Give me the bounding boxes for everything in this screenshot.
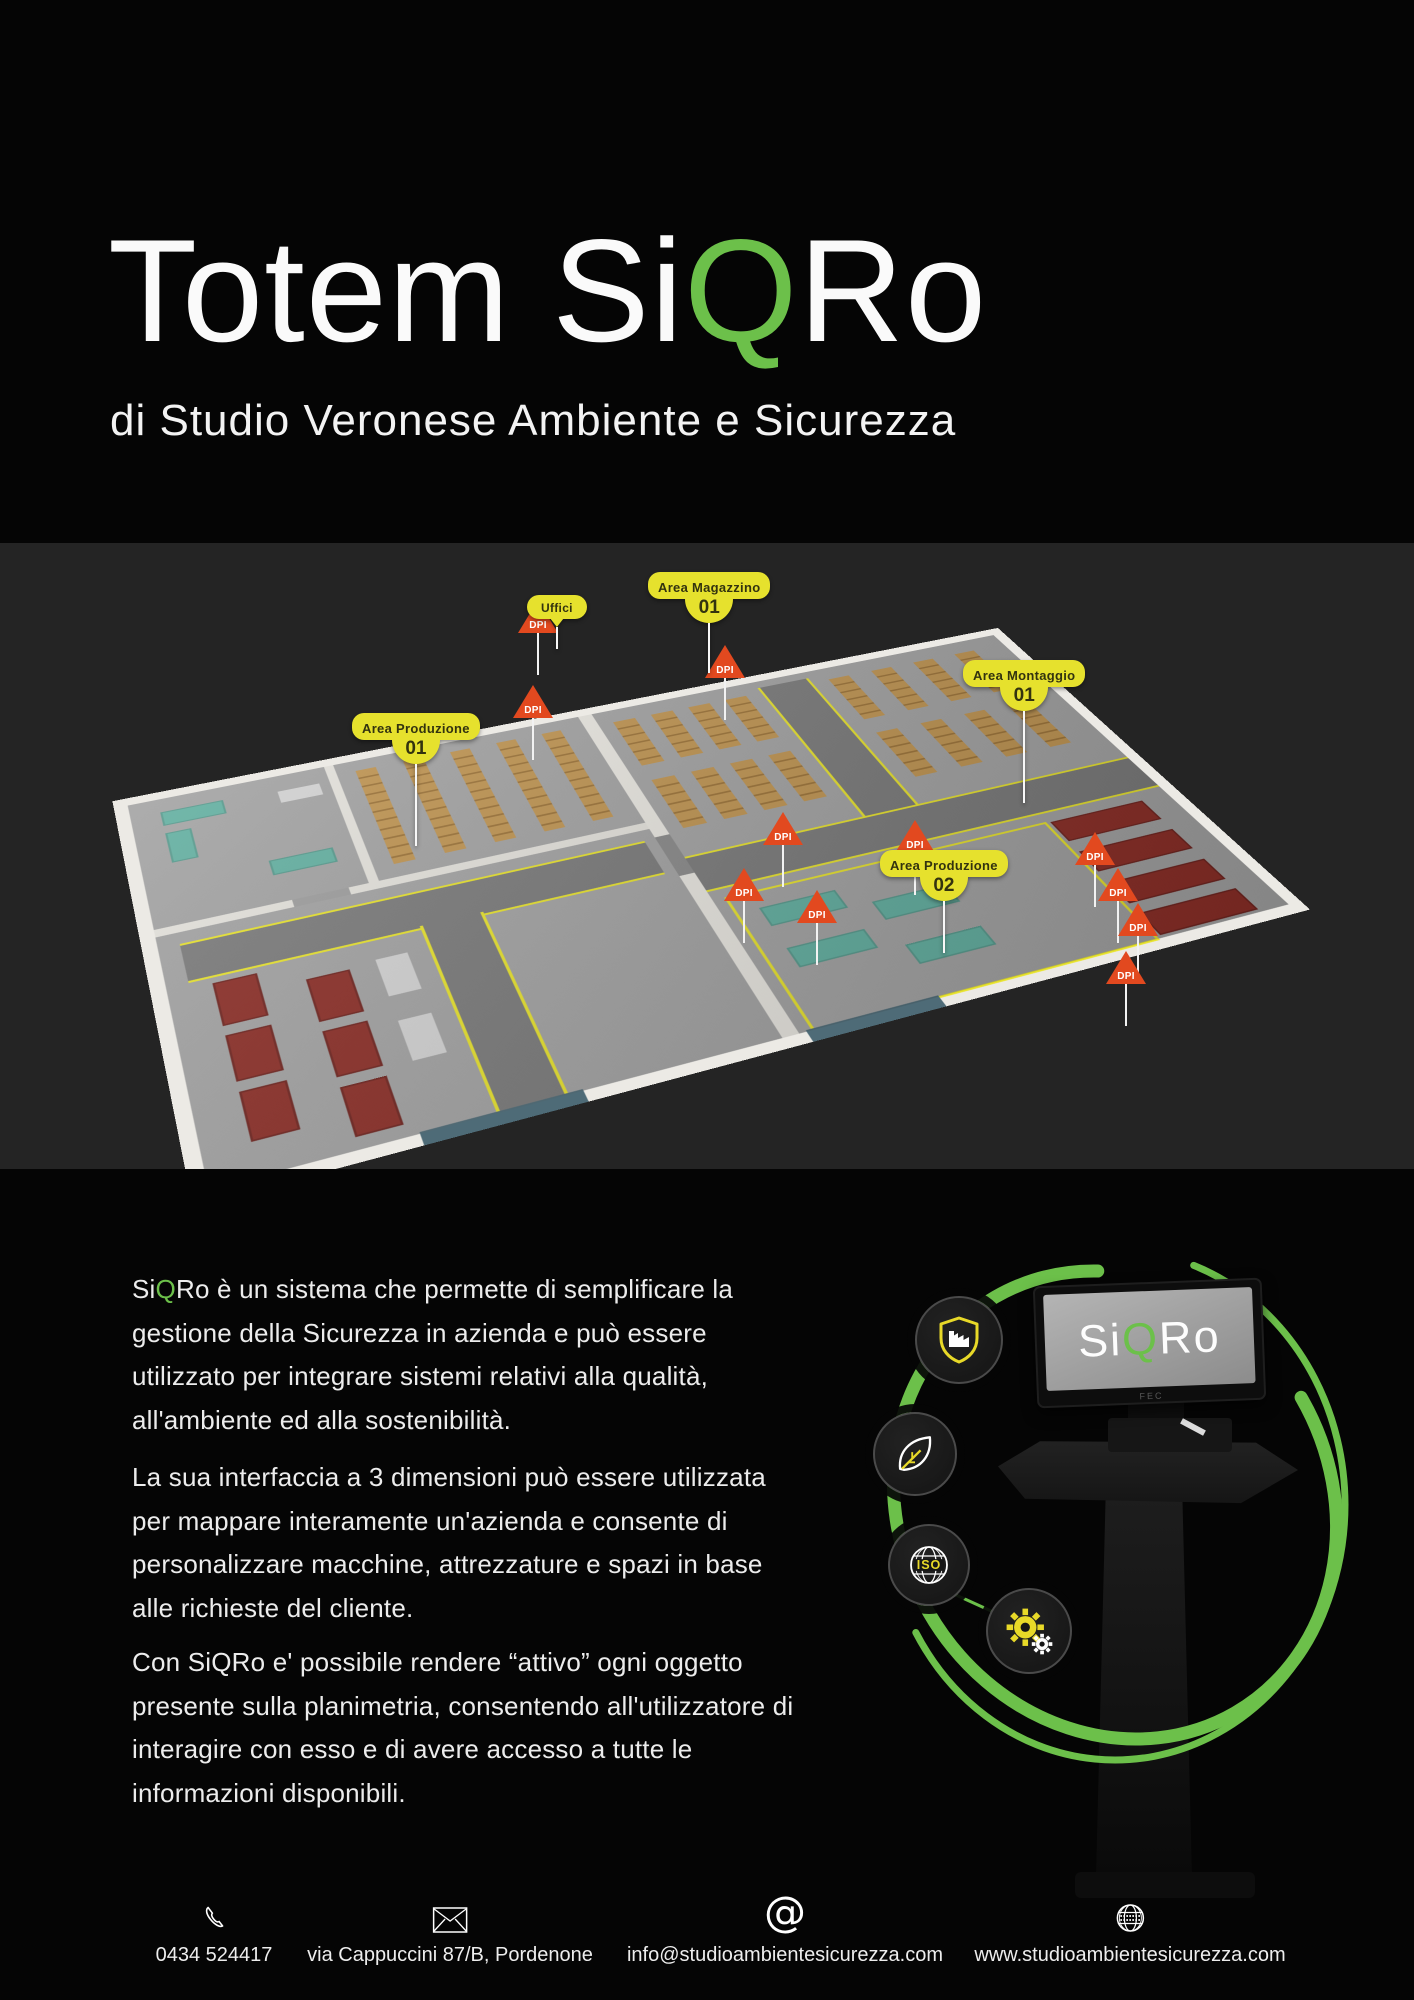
label-text: Uffici: [527, 595, 587, 619]
pin-pole: [532, 718, 534, 760]
iso-globe-icon: ISO: [902, 1538, 956, 1592]
floorplan-image: Uffici Area Magazzino 01 Area Montaggio …: [0, 543, 1414, 1169]
dpi-triangle-icon: DPI: [1106, 951, 1146, 984]
dpi-pin: DPI: [724, 868, 764, 943]
area-label-produzione-01: Area Produzione 01: [352, 713, 480, 846]
label-pole: [415, 764, 417, 846]
title-q-accent: Q: [684, 209, 799, 372]
label-number: 02: [920, 875, 968, 901]
environment-badge: [873, 1412, 957, 1496]
label-pointer: [550, 618, 564, 627]
page-title: Totem SiQRo: [108, 216, 987, 366]
paragraph-1: SiQRo è un sistema che permette di sempl…: [132, 1268, 942, 1442]
dpi-triangle-icon: DPI: [763, 812, 803, 845]
machine: [212, 973, 268, 1026]
dpi-pin: DPI: [797, 890, 837, 965]
screen-logo-post: Ro: [1158, 1310, 1221, 1363]
p1-pre: Si: [132, 1274, 156, 1304]
corridor: [420, 912, 569, 1114]
kiosk-base: [1075, 1872, 1255, 1898]
machine: [239, 1080, 301, 1142]
footer-website: www.studioambientesicurezza.com: [974, 1888, 1285, 1967]
area-label-produzione-02: Area Produzione 02: [880, 850, 1008, 953]
office-desk: [160, 800, 227, 826]
screen-logo-q: Q: [1121, 1313, 1160, 1365]
pin-pole: [816, 923, 818, 965]
pin-pole: [724, 678, 726, 720]
svg-text:ISO: ISO: [917, 1558, 941, 1572]
gears-icon: [1001, 1603, 1057, 1659]
footer-email: @ info@studioambientesicurezza.com: [627, 1888, 943, 1967]
footer-phone: 0434 524417: [156, 1888, 273, 1967]
machine: [340, 1076, 404, 1138]
footer-address: via Cappuccini 87/B, Pordenone: [307, 1888, 593, 1967]
at-icon: @: [764, 1888, 806, 1934]
machine: [306, 969, 364, 1022]
label-pole: [1023, 711, 1025, 803]
office-cabinet: [277, 783, 323, 802]
dpi-triangle-icon: DPI: [1118, 903, 1158, 936]
montaggio-rack: [871, 667, 929, 710]
phone-icon: [198, 1888, 230, 1934]
phone-number: 0434 524417: [156, 1944, 273, 1967]
area-label-magazzino: Area Magazzino 01: [648, 572, 770, 673]
machine: [225, 1025, 284, 1082]
label-number: 01: [685, 597, 733, 623]
label-text: Area Produzione: [352, 713, 480, 740]
machine: [322, 1020, 383, 1077]
label-number: 01: [392, 738, 440, 764]
leaf-icon: [889, 1428, 941, 1480]
shield-icon: [931, 1312, 987, 1368]
kiosk-screen-logo: SiQRo: [1077, 1310, 1221, 1367]
label-text: Area Montaggio: [963, 660, 1085, 687]
label-pole: [708, 623, 710, 673]
dpi-pin: DPI: [1106, 951, 1146, 1026]
label-text: Area Magazzino: [648, 572, 770, 599]
label-text: Area Produzione: [880, 850, 1008, 877]
kiosk-monitor: SiQRo FEC: [1033, 1278, 1267, 1409]
subtitle: di Studio Veronese Ambiente e Sicurezza: [110, 396, 956, 446]
screen-logo-pre: Si: [1077, 1314, 1123, 1367]
dpi-triangle-icon: DPI: [724, 868, 764, 901]
title-text-end: Ro: [799, 209, 988, 372]
area-label-montaggio: Area Montaggio 01: [963, 660, 1085, 803]
dpi-triangle-icon: DPI: [1098, 868, 1138, 901]
email-text: info@studioambientesicurezza.com: [627, 1944, 943, 1967]
office-desk: [165, 828, 199, 863]
work-table: [375, 952, 421, 996]
dpi-triangle-icon: DPI: [513, 685, 553, 718]
envelope-icon: [432, 1888, 468, 1934]
title-text: Totem Si: [108, 209, 684, 372]
dpi-triangle-icon: DPI: [797, 890, 837, 923]
address-text: via Cappuccini 87/B, Pordenone: [307, 1944, 593, 1967]
paragraph-3: Con SiQRo e' possibile rendere “attivo” …: [132, 1641, 942, 1815]
pin-pole: [743, 901, 745, 943]
poster-page: Totem SiQRo di Studio Veronese Ambiente …: [0, 0, 1414, 2000]
pin-pole: [782, 845, 784, 887]
paragraph-2: La sua interfaccia a 3 dimensioni può es…: [132, 1456, 942, 1630]
work-table: [398, 1013, 447, 1061]
safety-badge: [915, 1296, 1003, 1384]
kiosk-screen: SiQRo: [1043, 1287, 1256, 1391]
label-number: 01: [1000, 685, 1048, 711]
label-pole: [943, 901, 945, 953]
left-wing-door: [292, 887, 351, 906]
dpi-triangle-icon: DPI: [895, 820, 935, 853]
pin-pole: [1125, 984, 1127, 1026]
office-desk: [269, 847, 338, 875]
machinery-badge: [986, 1588, 1072, 1674]
dpi-pin: DPI: [763, 812, 803, 887]
p1-text: Ro è un sistema che permette di semplifi…: [132, 1274, 733, 1435]
pin-pole: [1094, 865, 1096, 907]
iso-badge: ISO: [888, 1524, 970, 1606]
label-pole: [556, 627, 558, 649]
dpi-triangle-icon: DPI: [1075, 832, 1115, 865]
area-label-uffici: Uffici: [527, 595, 587, 649]
dpi-pin: DPI: [513, 685, 553, 760]
website-text: www.studioambientesicurezza.com: [974, 1944, 1285, 1967]
p1-q-accent: Q: [156, 1274, 176, 1304]
